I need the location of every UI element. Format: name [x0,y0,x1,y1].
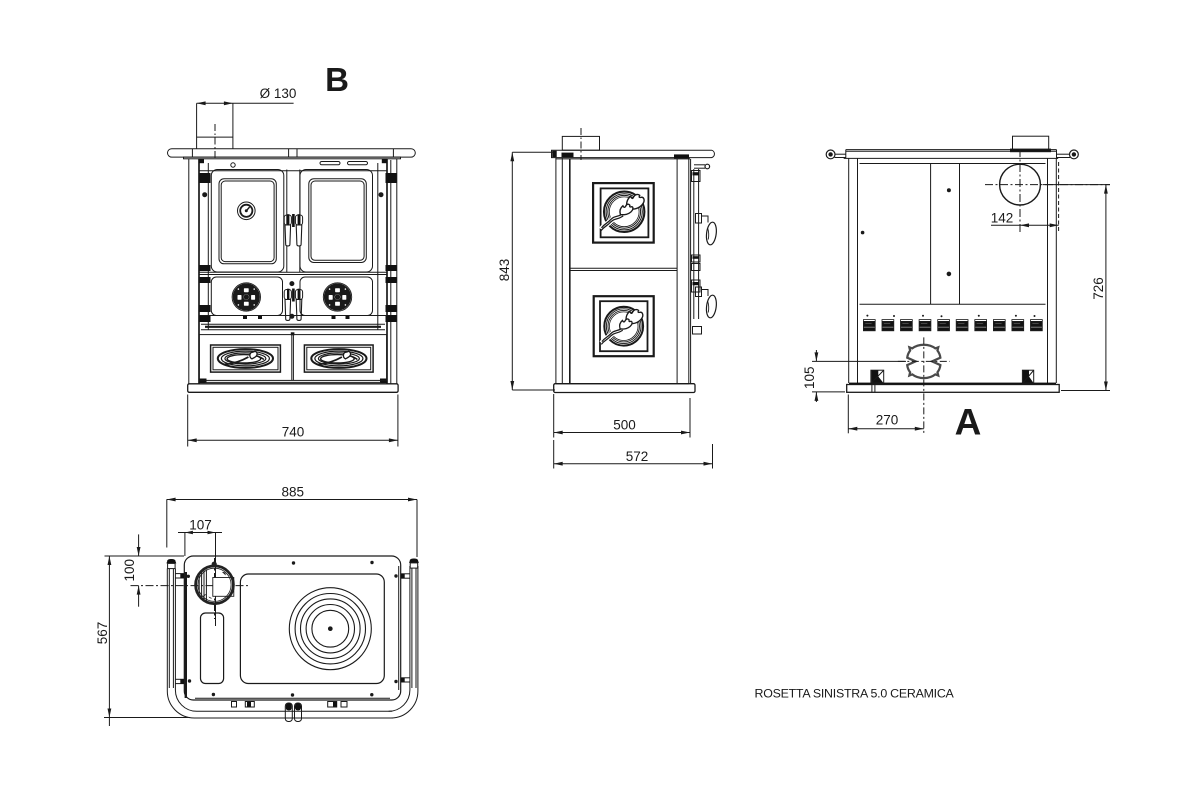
svg-text:270: 270 [876,413,899,428]
svg-text:A: A [955,402,982,443]
svg-text:726: 726 [1091,277,1106,300]
svg-text:Ø 130: Ø 130 [260,86,297,101]
svg-text:500: 500 [613,418,636,433]
svg-text:572: 572 [626,449,649,464]
svg-text:885: 885 [282,485,305,500]
svg-text:567: 567 [95,622,110,645]
svg-text:107: 107 [189,518,212,533]
svg-text:740: 740 [282,425,305,440]
svg-text:105: 105 [802,366,817,389]
svg-text:142: 142 [991,210,1014,225]
svg-text:ROSETTA SINISTRA 5.0 CERAMICA: ROSETTA SINISTRA 5.0 CERAMICA [755,687,955,701]
svg-text:100: 100 [122,559,137,582]
svg-text:B: B [325,61,349,98]
svg-text:843: 843 [497,259,512,282]
